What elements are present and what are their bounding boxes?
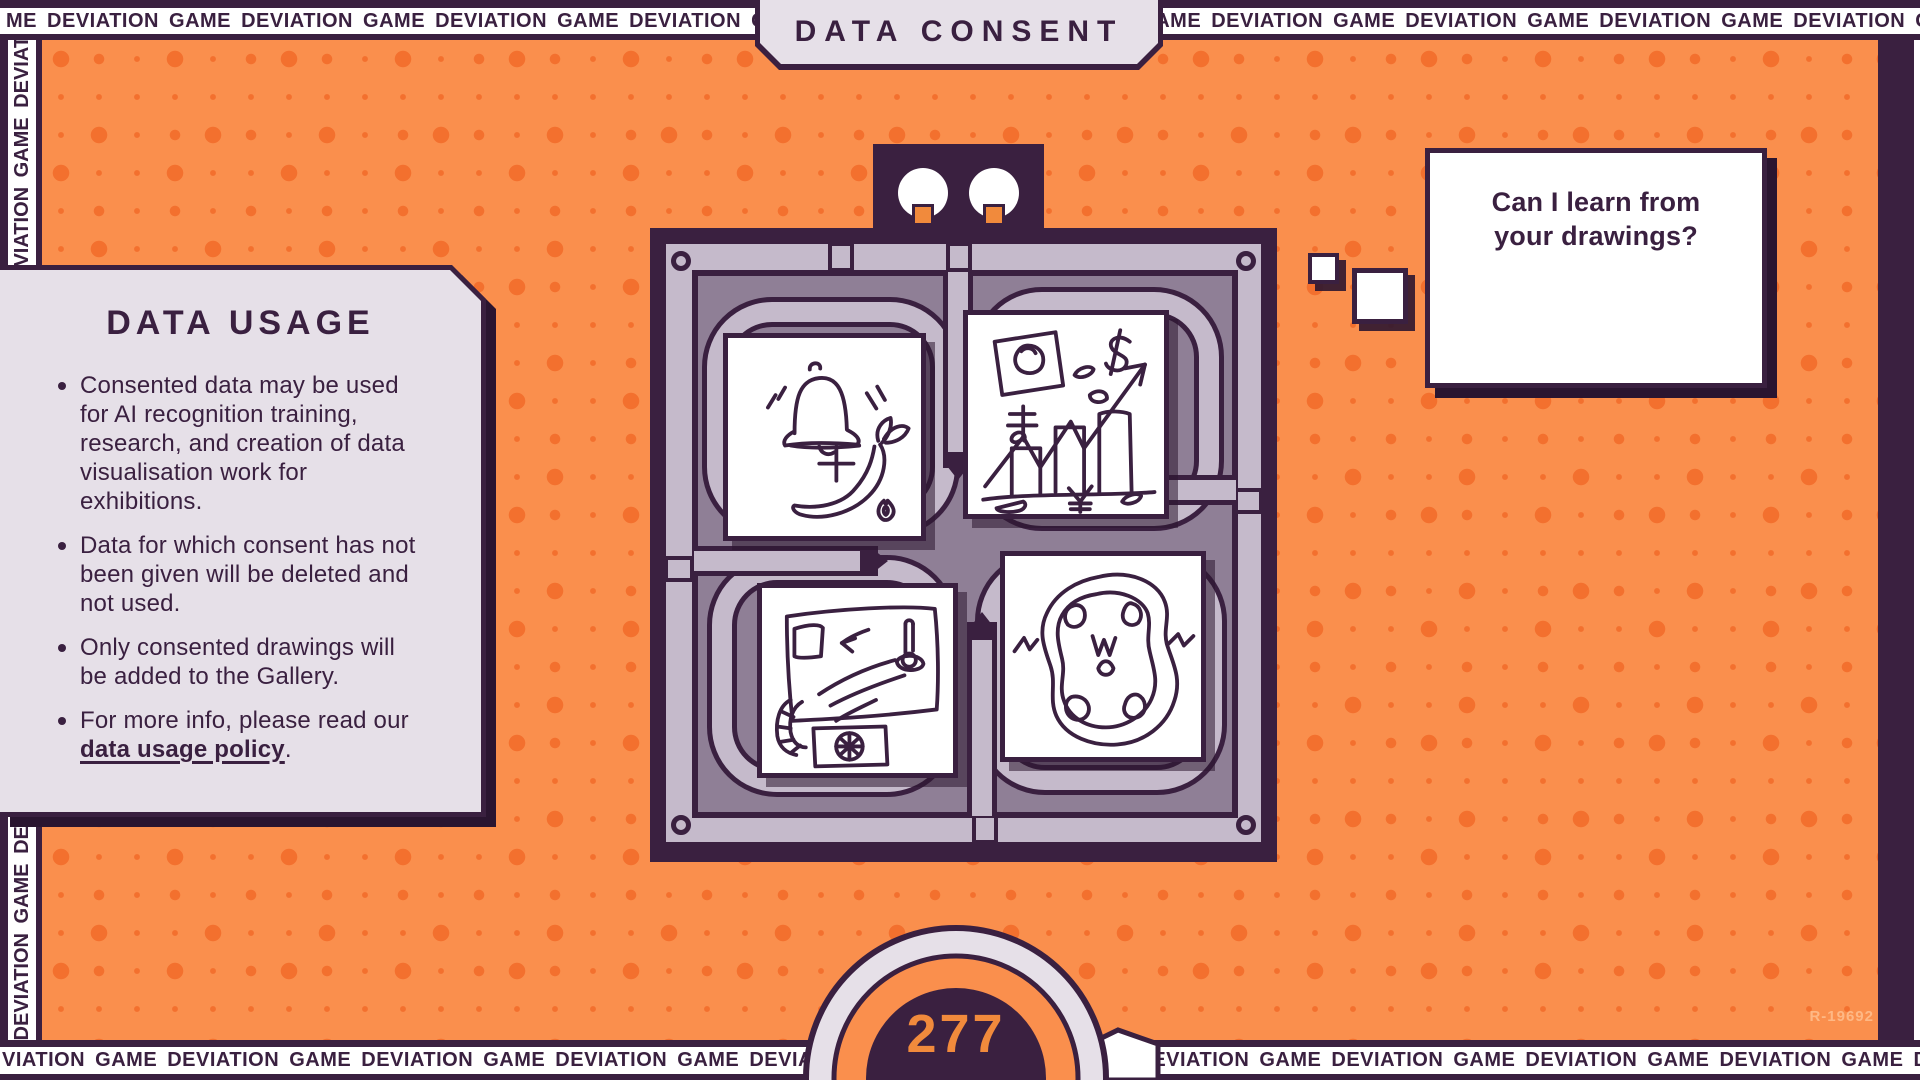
bullet-line: exhibitions.: [80, 487, 405, 516]
bullet-icon: [58, 542, 66, 550]
border-strip-right: DEVIATION GAME DEVIATION GAME DEVIATION …: [1878, 0, 1920, 1080]
bullet-line: for AI recognition training,: [80, 400, 405, 429]
bullet-line: be added to the Gallery.: [80, 662, 395, 691]
bullet-line: Data for which consent has not: [80, 531, 416, 560]
gauge-value: 277: [906, 1004, 1005, 1064]
robot-head: [873, 144, 1044, 234]
screw-icon: [671, 815, 691, 835]
list-item: Consented data may be used for AI recogn…: [58, 371, 461, 516]
bubble-text-line: Can I learn from: [1430, 185, 1762, 219]
bullet-line: Only consented drawings will: [80, 633, 395, 662]
pipe-stub-icon: [946, 242, 972, 272]
reference-code: R-19692: [1790, 1008, 1874, 1025]
panel-title: DATA USAGE: [0, 304, 481, 343]
bullet-icon: [58, 644, 66, 652]
bullet-line: For more info, please read our: [80, 706, 409, 735]
hippo-mouth-sketch: [1005, 556, 1201, 757]
bullet-line: not used.: [80, 589, 416, 618]
bullet-icon: [58, 382, 66, 390]
drawing-machine: [650, 228, 1277, 862]
bullet-line: Consented data may be used: [80, 371, 405, 400]
title-badge: DATA CONSENT: [755, 0, 1163, 70]
bullet-line: .: [285, 736, 292, 763]
drawing-card-aircon: [757, 583, 958, 778]
screw-icon: [1236, 815, 1256, 835]
page-title: DATA CONSENT: [795, 9, 1124, 49]
drawing-card-chart: [963, 310, 1169, 519]
bubble-text-line: your drawings?: [1430, 219, 1762, 253]
bullet-line: been given will be deleted and: [80, 560, 416, 589]
screw-icon: [1236, 251, 1256, 271]
air-conditioner-sketch: [762, 588, 953, 773]
list-item: Only consented drawings will be added to…: [58, 633, 461, 691]
pipe-stub-icon: [664, 556, 694, 582]
drawing-card-bell-chili: [723, 333, 926, 541]
screw-icon: [671, 251, 691, 271]
robot-pupil-left-icon: [912, 204, 934, 226]
bell-and-chili-sketch: [728, 338, 921, 536]
thought-bubble-square-small: [1308, 253, 1339, 284]
thought-bubble-square-large: [1352, 268, 1408, 324]
speech-bubble: Can I learn from your drawings?: [1425, 148, 1767, 388]
pipe-stub-icon: [828, 242, 854, 272]
drawing-card-hippo: [1000, 551, 1206, 762]
data-usage-policy-link[interactable]: data usage policy: [80, 736, 285, 763]
list-item: Data for which consent has not been give…: [58, 531, 461, 618]
data-usage-panel: DATA USAGE Consented data may be used fo…: [0, 265, 498, 829]
game-screen: ME DEVIATION GAME DEVIATION GAME DEVIATI…: [0, 0, 1920, 1080]
pipe-stub-icon: [972, 814, 998, 844]
stock-chart-sketch: [968, 315, 1164, 514]
list-item: For more info, please read our data usag…: [58, 706, 461, 764]
robot-pupil-right-icon: [983, 204, 1005, 226]
bullet-line: visualisation work for: [80, 458, 405, 487]
bullet-icon: [58, 717, 66, 725]
border-text-right: DEVIATION GAME DEVIATION GAME DEVIATION …: [1914, 0, 1920, 1080]
bullet-line: research, and creation of data: [80, 429, 405, 458]
score-gauge: 277: [770, 905, 1170, 1080]
